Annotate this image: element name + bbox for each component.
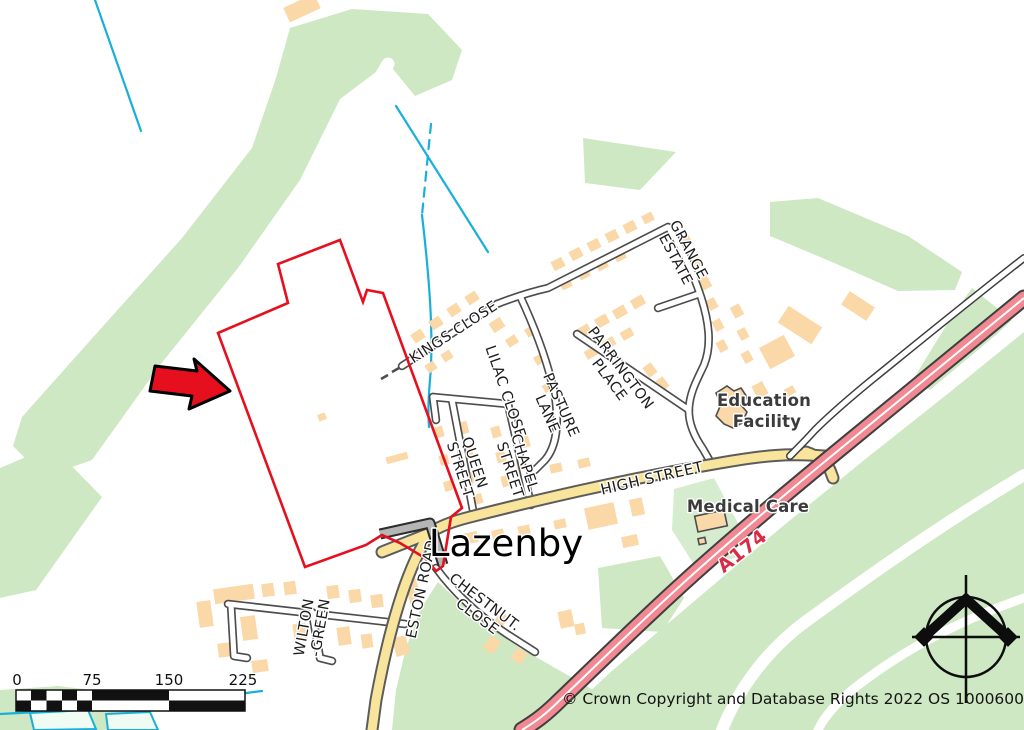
building — [584, 502, 618, 530]
building — [550, 257, 565, 271]
building — [317, 412, 327, 421]
building — [424, 361, 437, 374]
building — [620, 327, 635, 341]
building — [440, 350, 453, 363]
scale-segment — [77, 701, 92, 712]
scale-tick-150: 150 — [155, 671, 184, 689]
building — [196, 600, 213, 628]
scale-segment — [47, 690, 63, 701]
scale-segment — [92, 690, 169, 701]
scale-segment — [47, 701, 63, 712]
building — [490, 426, 502, 439]
medical-care-outbuilding — [698, 537, 706, 544]
scale-segment — [62, 690, 77, 701]
building — [410, 329, 426, 344]
building — [336, 626, 351, 646]
building — [361, 633, 374, 648]
building — [841, 291, 875, 321]
building — [385, 452, 408, 464]
building — [740, 350, 753, 364]
map-canvas: KINGS CLOSE GRANGE ESTATE PARRINGTON PLA… — [0, 0, 1024, 730]
street-fill — [497, 227, 668, 304]
scale-segment — [16, 701, 31, 712]
building — [326, 585, 340, 600]
building — [240, 615, 258, 641]
building — [612, 304, 628, 319]
building — [629, 497, 645, 516]
building — [604, 229, 619, 243]
building — [574, 623, 586, 636]
building — [586, 238, 601, 252]
green-left-edge — [0, 446, 102, 598]
scale-segment — [92, 701, 169, 712]
building — [505, 334, 519, 348]
building — [630, 294, 646, 309]
building — [715, 339, 728, 353]
place-label-lazenby: Lazenby — [429, 522, 583, 565]
building — [730, 303, 744, 318]
street-label-chapel-street: CHAPEL STREET — [492, 432, 542, 503]
scale-bar-segments — [16, 690, 245, 711]
street-label-lilac-close: LILAC CLOSE- — [482, 344, 531, 446]
scale-tick-75: 75 — [82, 671, 101, 689]
green-top-right — [770, 198, 962, 291]
green-top-mid — [583, 138, 676, 190]
building — [641, 211, 655, 224]
building — [283, 581, 297, 596]
building — [348, 589, 362, 604]
scale-bar: 0 75 150 225 — [12, 671, 257, 711]
scale-segment — [62, 701, 77, 712]
building — [577, 457, 591, 468]
building — [261, 583, 275, 598]
building — [217, 642, 231, 658]
building — [711, 318, 724, 332]
poi-label-medical-care: Medical Care — [687, 497, 809, 516]
building — [557, 609, 574, 629]
street-fill — [433, 397, 436, 420]
scale-segment — [169, 690, 245, 701]
scale-tick-225: 225 — [229, 671, 258, 689]
building — [489, 317, 506, 333]
street-fill — [433, 397, 508, 404]
woodland-band-nw — [13, 9, 462, 477]
building — [446, 303, 462, 318]
building — [621, 534, 639, 548]
street-fill — [658, 294, 699, 308]
building — [283, 0, 321, 22]
scale-segment — [77, 690, 92, 701]
building — [622, 220, 637, 234]
street-label-wilton-green: WILTON -GREEN — [292, 592, 334, 660]
building — [736, 327, 749, 341]
building — [549, 462, 563, 473]
site-pointer-arrow — [150, 359, 230, 409]
building — [464, 291, 480, 306]
building — [370, 594, 384, 609]
scale-segment — [169, 701, 245, 712]
pond — [106, 712, 158, 730]
scale-segment — [31, 701, 47, 712]
pond — [30, 710, 96, 730]
building — [568, 247, 583, 261]
scale-tick-0: 0 — [12, 671, 22, 689]
scale-segment — [31, 690, 47, 701]
scale-segment — [16, 690, 31, 701]
building — [759, 335, 795, 369]
copyright-text: © Crown Copyright and Database Rights 20… — [562, 690, 1024, 708]
kings-close-stub-dashes — [381, 368, 399, 379]
